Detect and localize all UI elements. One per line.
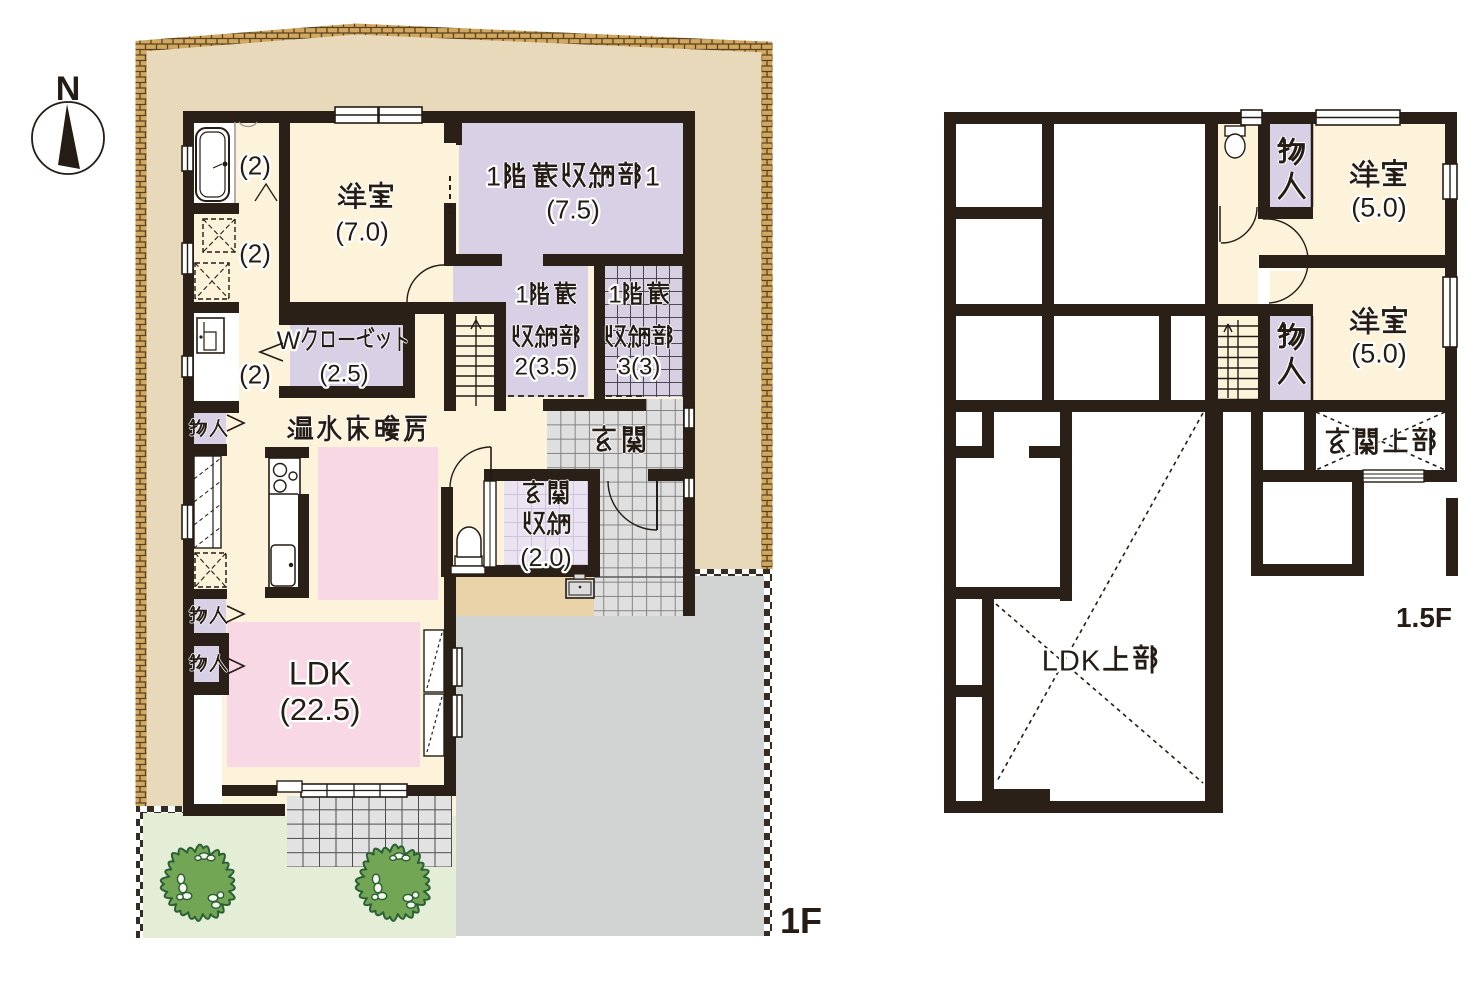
svg-text:2: 2 (515, 354, 528, 381)
svg-text:): ) (380, 216, 389, 246)
svg-text:): ) (652, 354, 660, 381)
svg-text:.: . (324, 692, 333, 727)
svg-text:5: 5 (1360, 193, 1375, 223)
svg-text:3: 3 (536, 354, 549, 381)
svg-text:(: ( (528, 354, 536, 381)
svg-text:3: 3 (639, 354, 652, 381)
svg-text:(: ( (1351, 339, 1360, 369)
svg-text:): ) (262, 359, 271, 389)
svg-text:0: 0 (549, 544, 563, 572)
svg-text:): ) (591, 194, 600, 224)
svg-text:1: 1 (486, 162, 501, 192)
svg-text:): ) (569, 354, 577, 381)
svg-text:K: K (330, 656, 351, 692)
svg-text:5: 5 (556, 354, 569, 381)
svg-text:(: ( (335, 216, 344, 246)
svg-text:.: . (549, 354, 556, 381)
svg-text:2: 2 (290, 692, 307, 727)
svg-text:): ) (262, 150, 271, 180)
svg-text:.: . (1375, 193, 1383, 223)
svg-text:): ) (563, 544, 571, 572)
svg-text:): ) (350, 692, 360, 727)
svg-text:D: D (307, 656, 330, 692)
svg-text:5: 5 (1360, 339, 1375, 369)
svg-text:(: ( (239, 359, 248, 389)
svg-text:.: . (1412, 602, 1420, 633)
svg-text:0: 0 (1383, 339, 1398, 369)
svg-text:7: 7 (344, 216, 358, 246)
svg-text:.: . (543, 544, 550, 572)
svg-text:2: 2 (529, 544, 543, 572)
svg-text:(: ( (239, 150, 248, 180)
svg-text:): ) (361, 361, 369, 388)
svg-text:1: 1 (1396, 602, 1412, 633)
svg-text:0: 0 (366, 216, 380, 246)
svg-text:): ) (1398, 339, 1407, 369)
svg-text:1: 1 (645, 162, 660, 192)
svg-text:0: 0 (1383, 193, 1398, 223)
svg-text:.: . (1375, 339, 1383, 369)
svg-text:(: ( (319, 361, 327, 388)
svg-text:1: 1 (515, 282, 528, 309)
svg-text:F: F (800, 900, 822, 941)
svg-text:2: 2 (248, 238, 262, 268)
svg-text:F: F (1435, 602, 1452, 633)
svg-text:(: ( (1351, 193, 1360, 223)
svg-text:(: ( (631, 354, 639, 381)
svg-text:.: . (569, 194, 576, 224)
svg-text:5: 5 (347, 361, 360, 388)
svg-text:2: 2 (307, 692, 324, 727)
svg-text:): ) (1398, 193, 1407, 223)
svg-text:(: ( (239, 238, 248, 268)
svg-text:.: . (358, 216, 365, 246)
svg-text:1: 1 (608, 282, 621, 309)
svg-text:L: L (1042, 645, 1058, 677)
svg-text:3: 3 (618, 354, 631, 381)
svg-text:N: N (56, 70, 81, 108)
svg-text:5: 5 (1419, 602, 1435, 633)
svg-text:1: 1 (780, 900, 800, 941)
svg-text:7: 7 (555, 194, 569, 224)
svg-text:5: 5 (577, 194, 591, 224)
svg-text:2: 2 (327, 361, 340, 388)
svg-text:D: D (1059, 645, 1080, 677)
svg-text:L: L (289, 656, 307, 692)
svg-text:2: 2 (248, 359, 262, 389)
svg-text:2: 2 (248, 150, 262, 180)
svg-text:K: K (1081, 645, 1101, 677)
svg-text:.: . (341, 361, 348, 388)
svg-text:W: W (277, 327, 301, 355)
svg-text:5: 5 (333, 692, 350, 727)
svg-text:(: ( (546, 194, 555, 224)
svg-text:): ) (262, 238, 271, 268)
